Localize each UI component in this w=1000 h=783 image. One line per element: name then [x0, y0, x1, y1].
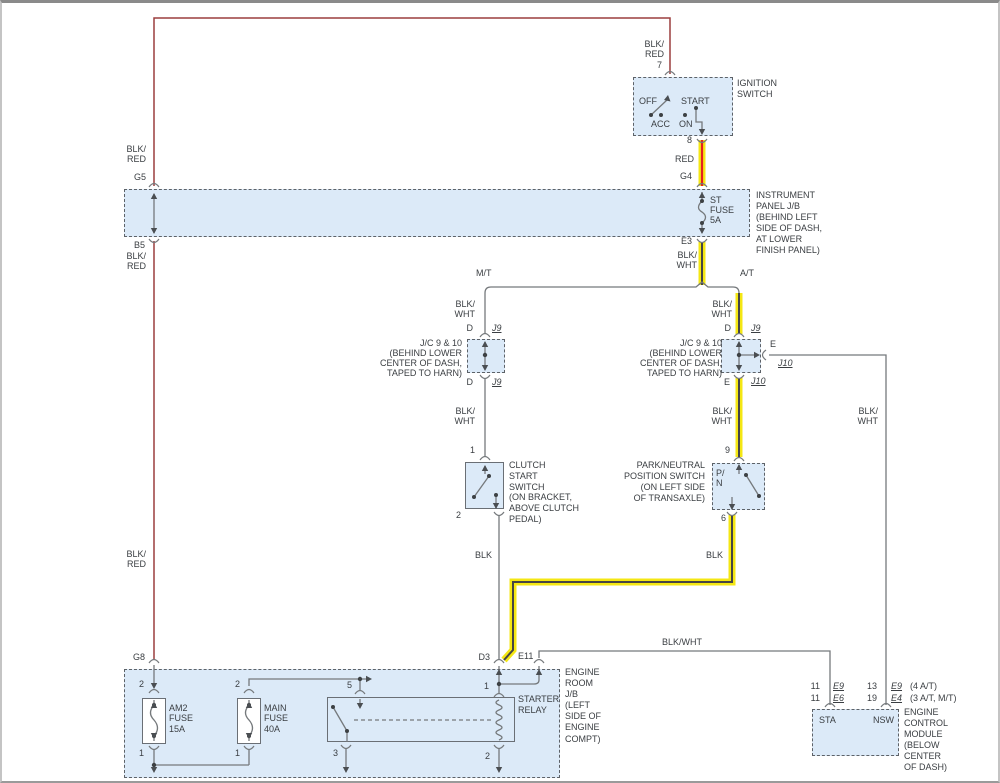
jc-mt-conn-j9-bottom: J9 — [492, 377, 502, 387]
ecm-terminal-nsw: NSW — [873, 715, 894, 725]
wire-label-blk-at: BLK — [706, 550, 723, 560]
connector-e3-label: E3 — [681, 236, 692, 246]
pin-8-label: 8 — [687, 135, 692, 145]
branch-at-label: A/T — [740, 268, 754, 278]
relay-pin-5-label: 5 — [347, 680, 352, 690]
connector-b5-label: B5 — [134, 240, 145, 250]
engine-room-jb-title: ENGINE ROOM J/B (LEFT SIDE OF ENGINE COM… — [565, 667, 601, 745]
connector-g4-label: G4 — [680, 171, 692, 181]
jc-at-conn-d-top: D — [725, 323, 732, 333]
ecm-terminal-sta: STA — [819, 715, 836, 725]
am2-fuse-label: AM2 FUSE 15A — [169, 703, 193, 734]
wiring-diagram-page: BLK/ RED 7 IGNITION SWITCH OFF START ACC… — [0, 0, 1000, 783]
pn-pin-6-label: 6 — [721, 513, 726, 523]
branch-mt-label: M/T — [476, 268, 492, 278]
wire-label-blk-red-left-top: BLK/ RED — [126, 144, 146, 164]
relay-pin-2-label: 2 — [485, 751, 490, 761]
jc-at-conn-j10-bottom: J10 — [751, 376, 766, 386]
pn-switch-label: P/ N — [716, 468, 725, 488]
clutch-switch-title: CLUTCH START SWITCH (ON BRACKET, ABOVE C… — [509, 460, 579, 525]
wire-blk-wht-cores — [504, 242, 739, 660]
arrowheads — [151, 95, 760, 773]
wire-label-blk-wht-mt-lower: BLK/ WHT — [455, 406, 476, 426]
jc-mt-conn-j9-top: J9 — [492, 323, 502, 333]
ignition-pos-on: ON — [679, 119, 693, 129]
wire-label-blk-wht-at-upper: BLK/ WHT — [712, 299, 733, 319]
ecm-row1-pin-b: 13 — [867, 681, 877, 691]
wire-label-blk-wht-e3: BLK/ WHT — [677, 250, 698, 270]
ecm-row1-conn-a: E9 — [833, 681, 844, 691]
ecm-row1-conn-b: E9 — [891, 681, 902, 691]
connector-arcs — [149, 72, 891, 750]
wire-label-blk-red-top: BLK/ RED — [644, 39, 664, 59]
ecm-row1-pin-a: 11 — [811, 681, 820, 691]
instrument-panel-jb-title: INSTRUMENT PANEL J/B (BEHIND LEFT SIDE O… — [756, 190, 822, 256]
jc-at-conn-j10-right: J10 — [778, 358, 793, 368]
main-pin-2-label: 2 — [235, 679, 240, 689]
pn-switch-title: PARK/NEUTRAL POSITION SWITCH (ON LEFT SI… — [624, 460, 705, 504]
wire-label-blk-wht-mt-upper: BLK/ WHT — [455, 299, 476, 319]
ecm-row2-pin-a: 11 — [811, 693, 820, 703]
wire-label-blk-wht-at-lower: BLK/ WHT — [712, 406, 733, 426]
ecm-row2-pin-b: 19 — [867, 693, 877, 703]
am2-pin-1-label: 1 — [139, 748, 144, 758]
wire-label-blk-red-left-lower: BLK/ RED — [126, 549, 146, 569]
ignition-switch-title: IGNITION SWITCH — [737, 78, 777, 100]
wire-label-blk-mt: BLK — [475, 550, 492, 560]
main-pin-1-label: 1 — [235, 748, 240, 758]
ignition-pos-acc: ACC — [651, 119, 670, 129]
st-fuse-label: ST FUSE 5A — [710, 195, 734, 225]
jc-mt-conn-d-top: D — [467, 323, 474, 333]
starter-relay-title: STARTER RELAY — [518, 694, 559, 716]
connector-d3-label: D3 — [478, 652, 490, 662]
wire-label-blk-wht-far-right: BLK/ WHT — [858, 406, 879, 426]
jc-at-title: J/C 9 & 10 (BEHIND LOWER CENTER OF DASH,… — [640, 338, 722, 378]
wiring-svg — [2, 3, 1000, 783]
jc-mt-conn-d-bottom: D — [467, 377, 474, 387]
pn-pin-9-label: 9 — [725, 445, 730, 455]
ecm-row2-note: (3 A/T, M/T) — [910, 693, 957, 703]
ignition-pos-start: START — [681, 96, 710, 106]
connector-g8-label: G8 — [133, 652, 145, 662]
ecm-title: ENGINE CONTROL MODULE (BELOW CENTER OF D… — [904, 707, 948, 773]
pin-7-label: 7 — [657, 60, 662, 70]
junction-dots — [152, 106, 761, 767]
am2-pin-2-label: 2 — [139, 679, 144, 689]
relay-pin-1-label: 1 — [484, 681, 489, 691]
ignition-pos-off: OFF — [639, 96, 657, 106]
ecm-row2-conn-b: E4 — [891, 693, 902, 703]
wire-label-blk-wht-bottom: BLK/WHT — [662, 637, 702, 647]
jc-at-conn-e-right: E — [770, 339, 776, 349]
relay-pin-3-label: 3 — [333, 748, 338, 758]
clutch-pin-2-label: 2 — [456, 510, 461, 520]
ecm-row2-conn-a: E6 — [833, 693, 844, 703]
jc-mt-title: J/C 9 & 10 (BEHIND LOWER CENTER OF DASH,… — [380, 338, 462, 378]
wire-label-blk-red-left-mid: BLK/ RED — [126, 251, 146, 271]
jc-at-conn-j9-top: J9 — [751, 323, 761, 333]
wire-label-red: RED — [675, 154, 694, 164]
clutch-pin-1-label: 1 — [470, 445, 475, 455]
jc-at-conn-e-bottom: E — [724, 377, 730, 387]
main-fuse-label: MAIN FUSE 40A — [264, 703, 288, 734]
ecm-row1-note: (4 A/T) — [910, 681, 937, 691]
connector-e11-label: E11 — [518, 651, 533, 661]
connector-g5-label: G5 — [134, 172, 146, 182]
